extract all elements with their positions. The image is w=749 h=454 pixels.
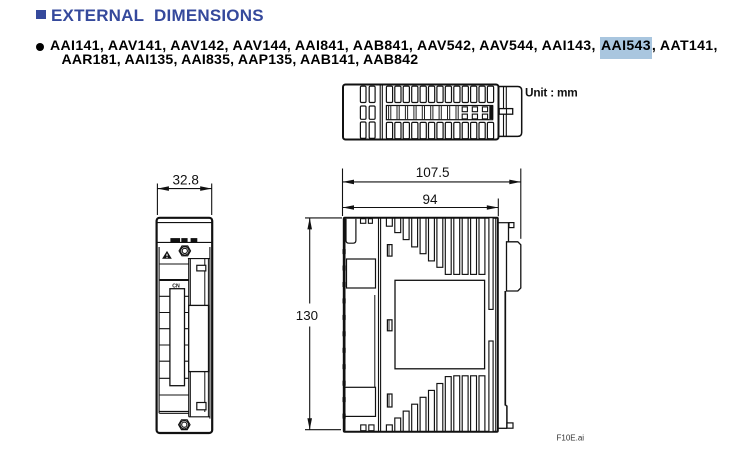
- svg-text:CN: CN: [172, 284, 180, 290]
- svg-text:130: 130: [296, 308, 318, 323]
- svg-text:107.5: 107.5: [416, 165, 450, 180]
- svg-text:32.8: 32.8: [173, 173, 199, 188]
- svg-text:F10E.ai: F10E.ai: [557, 433, 585, 442]
- svg-text:94: 94: [422, 192, 438, 207]
- svg-text:Unit : mm: Unit : mm: [525, 86, 578, 100]
